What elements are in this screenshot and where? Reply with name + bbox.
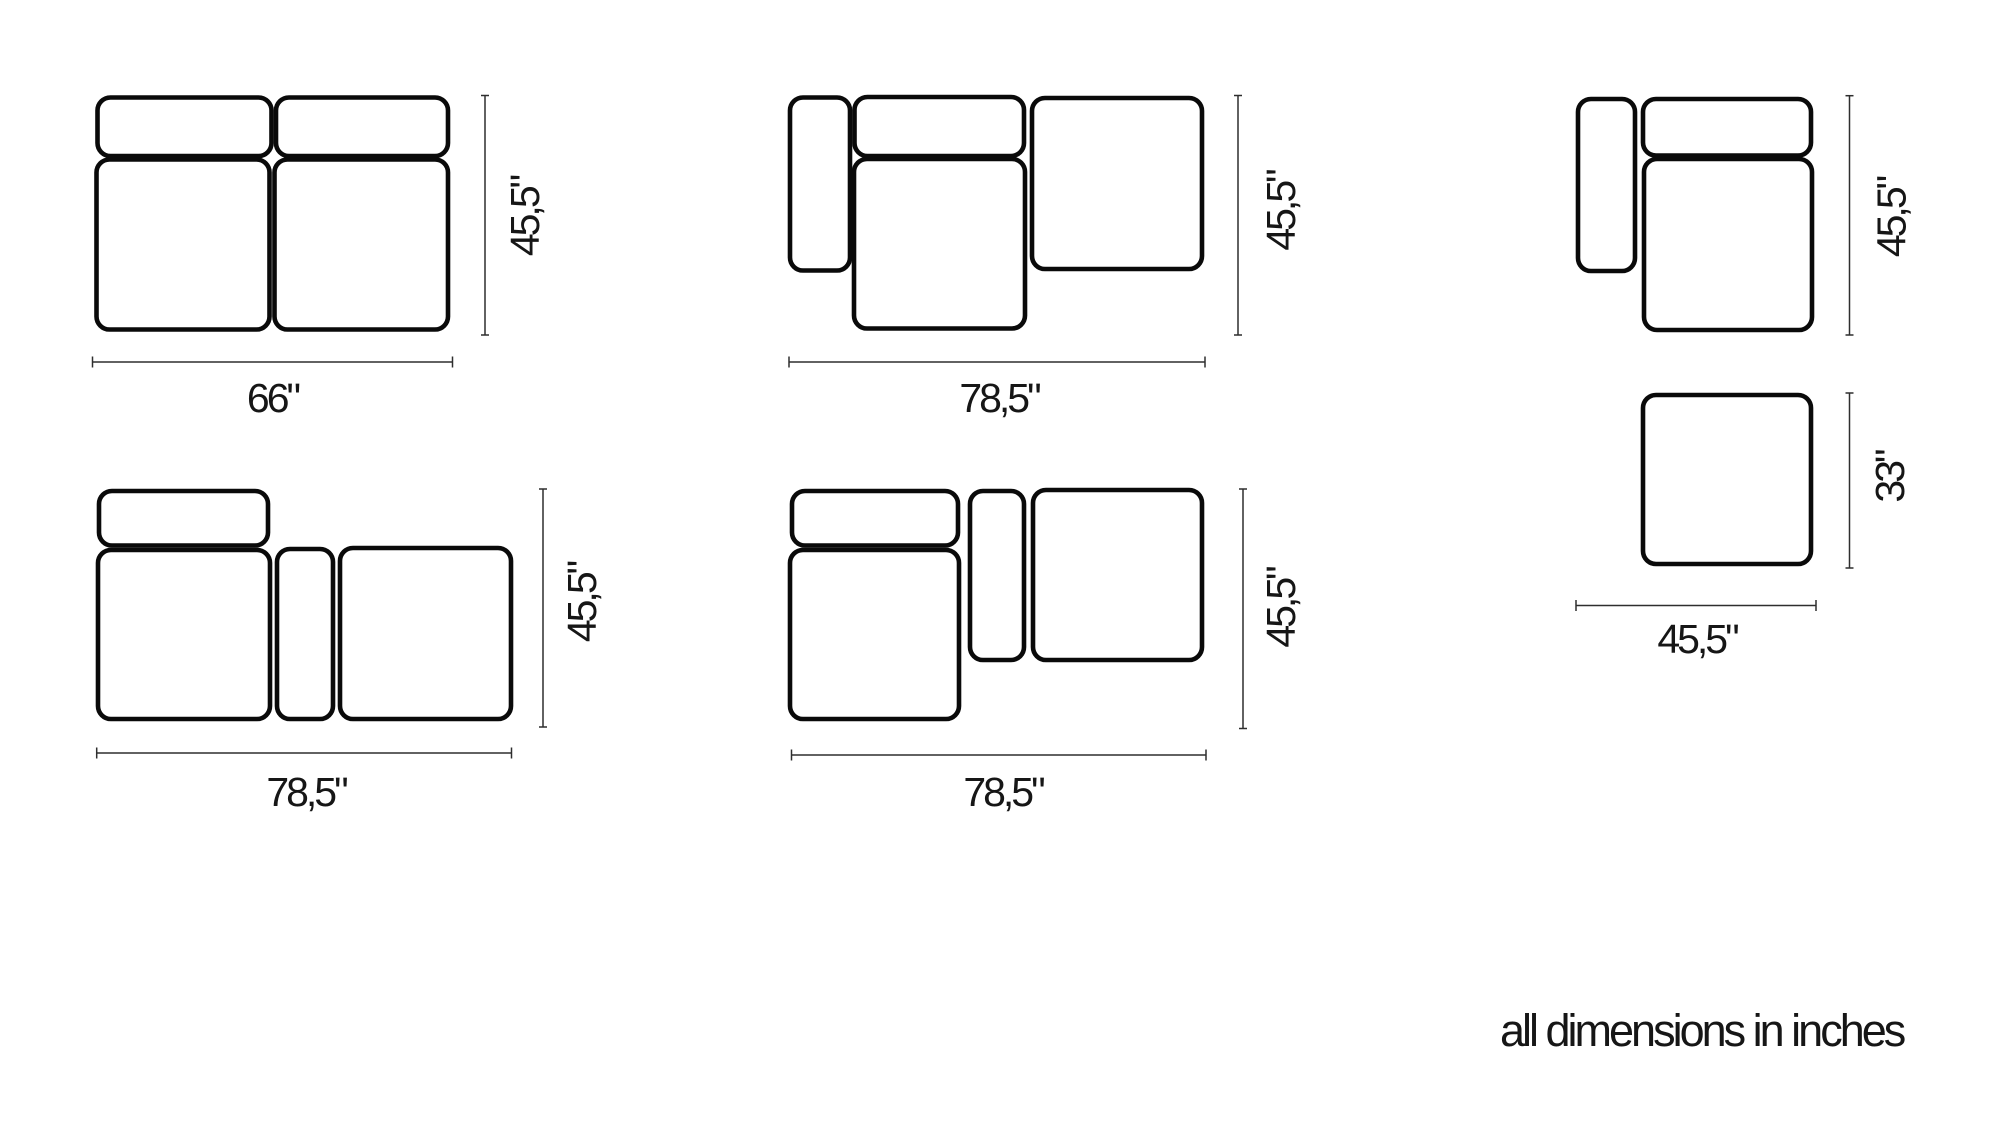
svg-text:45,5": 45,5" (502, 175, 548, 256)
svg-text:78,5": 78,5" (959, 375, 1040, 421)
svg-text:78,5": 78,5" (963, 769, 1044, 815)
svg-text:45,5": 45,5" (1258, 567, 1304, 648)
svg-text:45,5": 45,5" (1258, 170, 1304, 251)
svg-text:66": 66" (247, 375, 300, 421)
svg-text:45,5": 45,5" (1657, 616, 1738, 662)
svg-text:33": 33" (1867, 450, 1913, 503)
svg-text:45,5": 45,5" (1869, 176, 1915, 257)
svg-text:45,5": 45,5" (559, 561, 605, 642)
svg-text:all dimensions in inches: all dimensions in inches (1500, 1005, 1905, 1056)
svg-text:78,5": 78,5" (266, 769, 347, 815)
